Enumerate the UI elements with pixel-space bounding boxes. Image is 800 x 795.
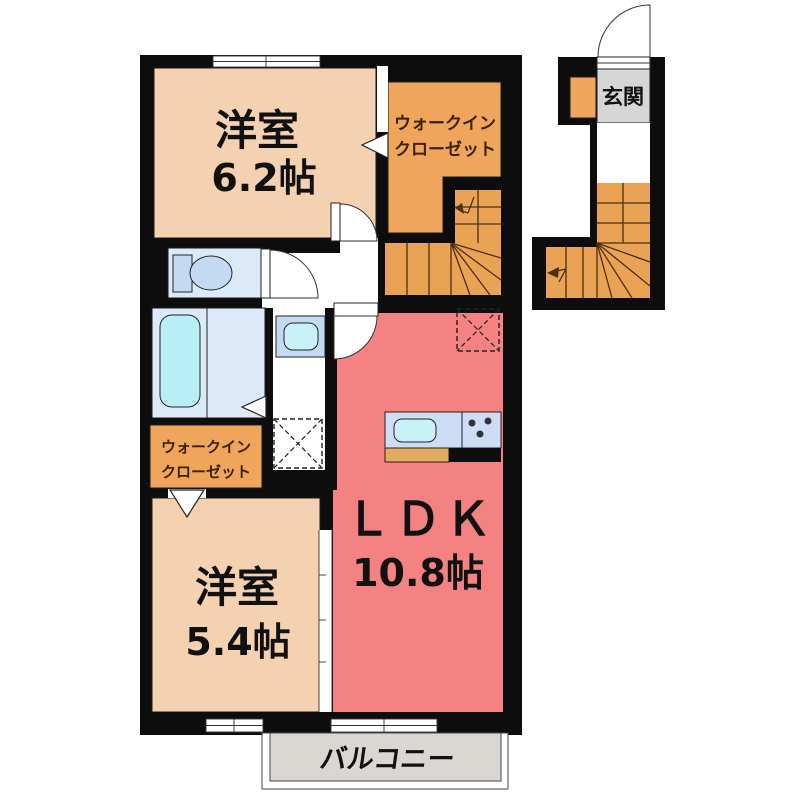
entrance-label: 玄関 <box>602 85 644 109</box>
wic-lower-label-line2: クローゼット <box>161 463 251 481</box>
entrance-hall-floor <box>597 123 650 183</box>
wic-upper-label-line1: ウォークイン <box>394 114 496 134</box>
bedroom2-size: 5.4帖 <box>185 620 290 664</box>
washbasin-icon <box>276 316 325 357</box>
ldk-size: 10.8帖 <box>352 551 484 595</box>
floor-plan-canvas: 洋室 6.2帖 ウォークイン クローゼット ウォークイン クローゼット 洋室 5… <box>0 0 800 795</box>
bedroom1-window <box>213 56 320 67</box>
bedroom1-label: 洋室 <box>215 106 299 155</box>
wic-upper-label-line2: クローゼット <box>394 139 496 160</box>
washer-pan-icon <box>274 419 322 468</box>
ldk-label: ＬＤＫ <box>345 492 495 546</box>
bedroom1-size: 6.2帖 <box>211 156 316 200</box>
floor-plan: 洋室 6.2帖 ウォークイン クローゼット ウォークイン クローゼット 洋室 5… <box>0 0 800 795</box>
shoe-cabinet <box>570 77 596 118</box>
bedroom2-window <box>206 719 263 732</box>
wic-lower-label-line1: ウォークイン <box>161 438 251 456</box>
bedroom2-label: 洋室 <box>195 563 279 612</box>
balcony-label: バルコニー <box>318 744 457 775</box>
sliding-door-partition <box>319 530 332 712</box>
ldk-window <box>331 719 437 732</box>
toilet-icon <box>173 255 232 292</box>
kitchen-counter-icon <box>385 412 501 462</box>
entrance-door <box>597 5 650 69</box>
wic-upper-opening <box>377 66 388 132</box>
